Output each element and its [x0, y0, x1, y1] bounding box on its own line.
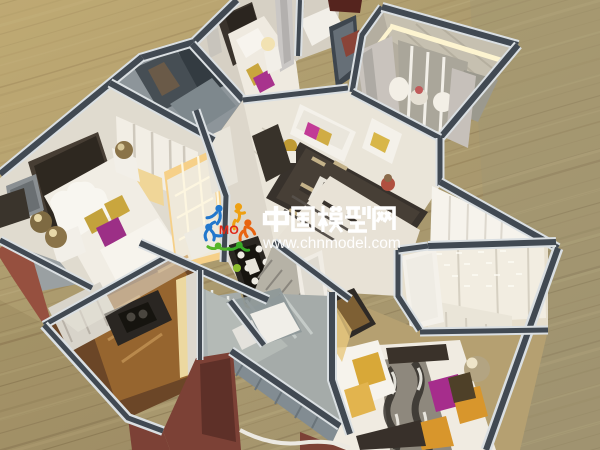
- svg-text:MO: MO: [219, 223, 239, 237]
- svg-text:www.chnmodel.com: www.chnmodel.com: [262, 235, 401, 252]
